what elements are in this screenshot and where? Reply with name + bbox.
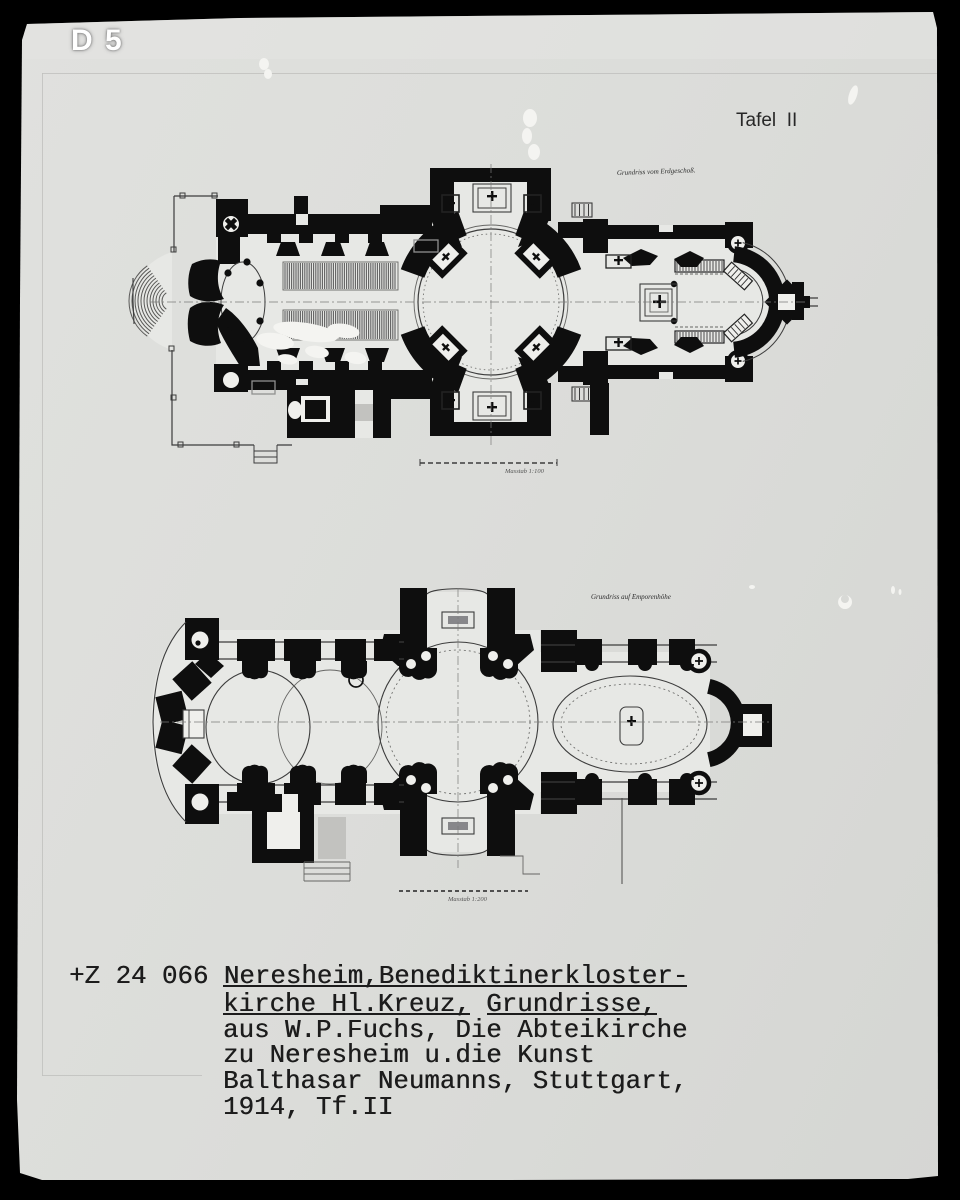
- svg-text:Masstab 1:100: Masstab 1:100: [504, 468, 545, 475]
- svg-text:Grundriss auf Emporenhöhe: Grundriss auf Emporenhöhe: [591, 593, 671, 601]
- svg-text:Masstab 1:200: Masstab 1:200: [447, 896, 488, 903]
- svg-text:Grundriss vom Erdgeschoß.: Grundriss vom Erdgeschoß.: [617, 166, 696, 177]
